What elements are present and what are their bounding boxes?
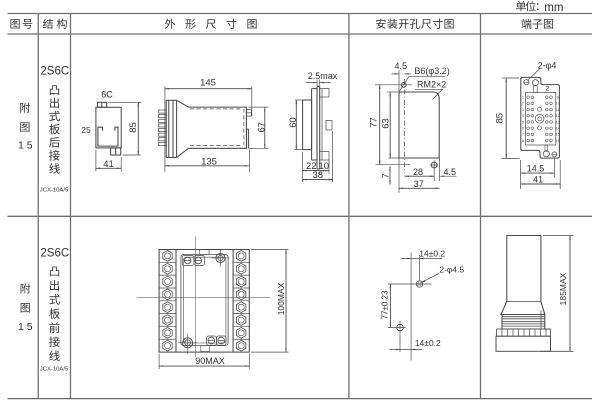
svg-text:10: 10 [556,102,560,106]
svg-text:15: 15 [556,133,560,137]
svg-text:85: 85 [495,113,506,124]
svg-text:135: 135 [201,157,217,168]
svg-text:37: 37 [414,179,424,189]
svg-text:77±0.23: 77±0.23 [381,290,390,319]
svg-text:28: 28 [413,167,423,177]
svg-text:14.5: 14.5 [527,163,545,173]
svg-text:JCX-10A/5: JCX-10A/5 [40,188,69,194]
svg-text:25: 25 [81,125,91,135]
svg-text:38: 38 [313,170,324,181]
svg-text:JCX-10A/5: JCX-10A/5 [40,366,69,372]
svg-text:7: 7 [381,173,392,178]
svg-text:1 5: 1 5 [18,321,33,333]
svg-text:16: 16 [556,139,560,143]
svg-text:60: 60 [288,117,299,128]
svg-text:100MAX: 100MAX [276,282,286,315]
svg-text:7: 7 [522,133,524,137]
svg-text:41: 41 [103,159,114,170]
svg-text:3: 3 [522,108,524,112]
svg-text:4: 4 [522,114,524,118]
svg-text:6C: 6C [101,90,113,100]
svg-text:mm: mm [544,2,563,14]
svg-text:2-φ4.5: 2-φ4.5 [439,265,464,275]
svg-text:RM2×2: RM2×2 [417,80,446,90]
svg-text:145: 145 [200,78,216,89]
svg-text:9: 9 [557,96,559,100]
svg-text:90MAX: 90MAX [195,356,225,366]
svg-text:4.5: 4.5 [395,61,408,71]
svg-text:77: 77 [369,117,380,128]
svg-text:2S6C: 2S6C [40,247,69,259]
svg-text:2-φ4: 2-φ4 [538,60,557,70]
svg-text:13: 13 [556,120,560,124]
svg-text:1: 1 [522,96,524,100]
svg-text:67: 67 [257,122,268,133]
svg-text:41: 41 [533,175,543,185]
svg-text:2: 2 [522,102,524,106]
svg-text:B6(φ3.2): B6(φ3.2) [414,66,449,76]
svg-text:1 5: 1 5 [18,140,33,152]
svg-text:8: 8 [522,139,524,143]
svg-text:14: 14 [556,126,560,130]
svg-text:2S6C: 2S6C [40,66,69,78]
svg-text:6: 6 [522,126,524,130]
svg-text:2.5max: 2.5max [308,71,338,81]
svg-text:63: 63 [380,118,391,129]
svg-text:85: 85 [128,122,139,133]
svg-text:11: 11 [556,108,560,112]
svg-text:2: 2 [546,86,550,93]
svg-text:12: 12 [556,114,560,118]
svg-text:4.5: 4.5 [444,167,457,177]
svg-text:14±0.2: 14±0.2 [415,338,441,348]
svg-text:5: 5 [522,120,524,124]
svg-text:185MAX: 185MAX [558,272,568,305]
svg-text:14±0.2: 14±0.2 [419,248,445,258]
